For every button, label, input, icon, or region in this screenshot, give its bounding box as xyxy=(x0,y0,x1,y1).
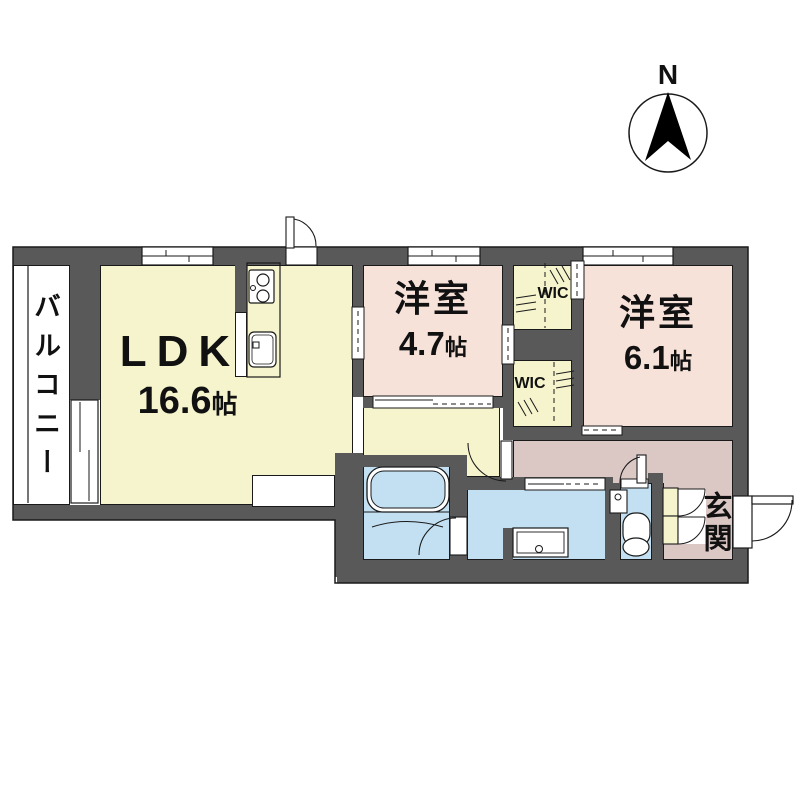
ldk-area-unit: 帖 xyxy=(212,391,238,419)
wall-bath-left xyxy=(335,453,363,577)
wall-toilet-top-right xyxy=(648,473,663,483)
wall-bottom-left xyxy=(13,505,363,520)
wic2-label: WIC xyxy=(510,376,550,392)
wall-toilet-left xyxy=(605,483,620,577)
wall-hall-top xyxy=(503,427,737,440)
wall-47-right-upper xyxy=(503,258,513,327)
west47-area-unit: 帖 xyxy=(445,335,467,360)
wall-47-bottom xyxy=(363,397,503,408)
wic1-label: WIC xyxy=(533,286,573,302)
wall-washroom-step xyxy=(503,528,513,560)
wall-washroom-top xyxy=(467,477,613,490)
entrance-label: 玄関 xyxy=(700,491,729,555)
wall-kitchen-stub xyxy=(235,257,247,312)
west61-area-unit: 帖 xyxy=(670,349,692,374)
west47-room-name: 洋室 xyxy=(363,281,503,317)
compass-north-label: N xyxy=(656,61,680,89)
wall-left-main xyxy=(70,258,100,400)
west61-room-area: 6.1帖 xyxy=(583,341,733,374)
ldk-area-value: 16.6 xyxy=(138,380,212,422)
wall-wic1-61-top xyxy=(572,258,583,263)
west61-area-value: 6.1 xyxy=(624,339,670,376)
ldk-room-name: LDK xyxy=(100,330,260,374)
wic2-room xyxy=(513,360,572,427)
wall-ldk-47-upper xyxy=(353,257,363,310)
balcony-label: バルコニー xyxy=(31,292,58,487)
wall-wic-gap xyxy=(513,330,572,360)
wall-right xyxy=(733,247,748,583)
wall-toilet-right xyxy=(652,483,663,577)
west47-area-value: 4.7 xyxy=(399,325,445,362)
floor-plan: LDK 16.6帖 洋室 4.7帖 洋室 6.1帖 WIC WIC 玄関 バルコ… xyxy=(0,0,800,800)
compass-icon xyxy=(629,92,707,172)
ldk-storage-alcove xyxy=(252,475,335,507)
bathroom xyxy=(363,457,450,560)
west61-room-name: 洋室 xyxy=(583,295,733,331)
wall-ldk-47-lower xyxy=(353,357,363,397)
ldk-room-area: 16.6帖 xyxy=(100,382,275,420)
window-balcony-icon xyxy=(71,400,98,503)
wall-bottom-right xyxy=(337,560,748,583)
west47-room-area: 4.7帖 xyxy=(363,327,503,360)
wall-bath-right-lower xyxy=(450,555,467,577)
toilet-room xyxy=(620,483,652,560)
wall-bath-right-upper xyxy=(450,457,467,517)
wall-top xyxy=(13,247,748,265)
wall-wic1-61 xyxy=(572,296,583,440)
